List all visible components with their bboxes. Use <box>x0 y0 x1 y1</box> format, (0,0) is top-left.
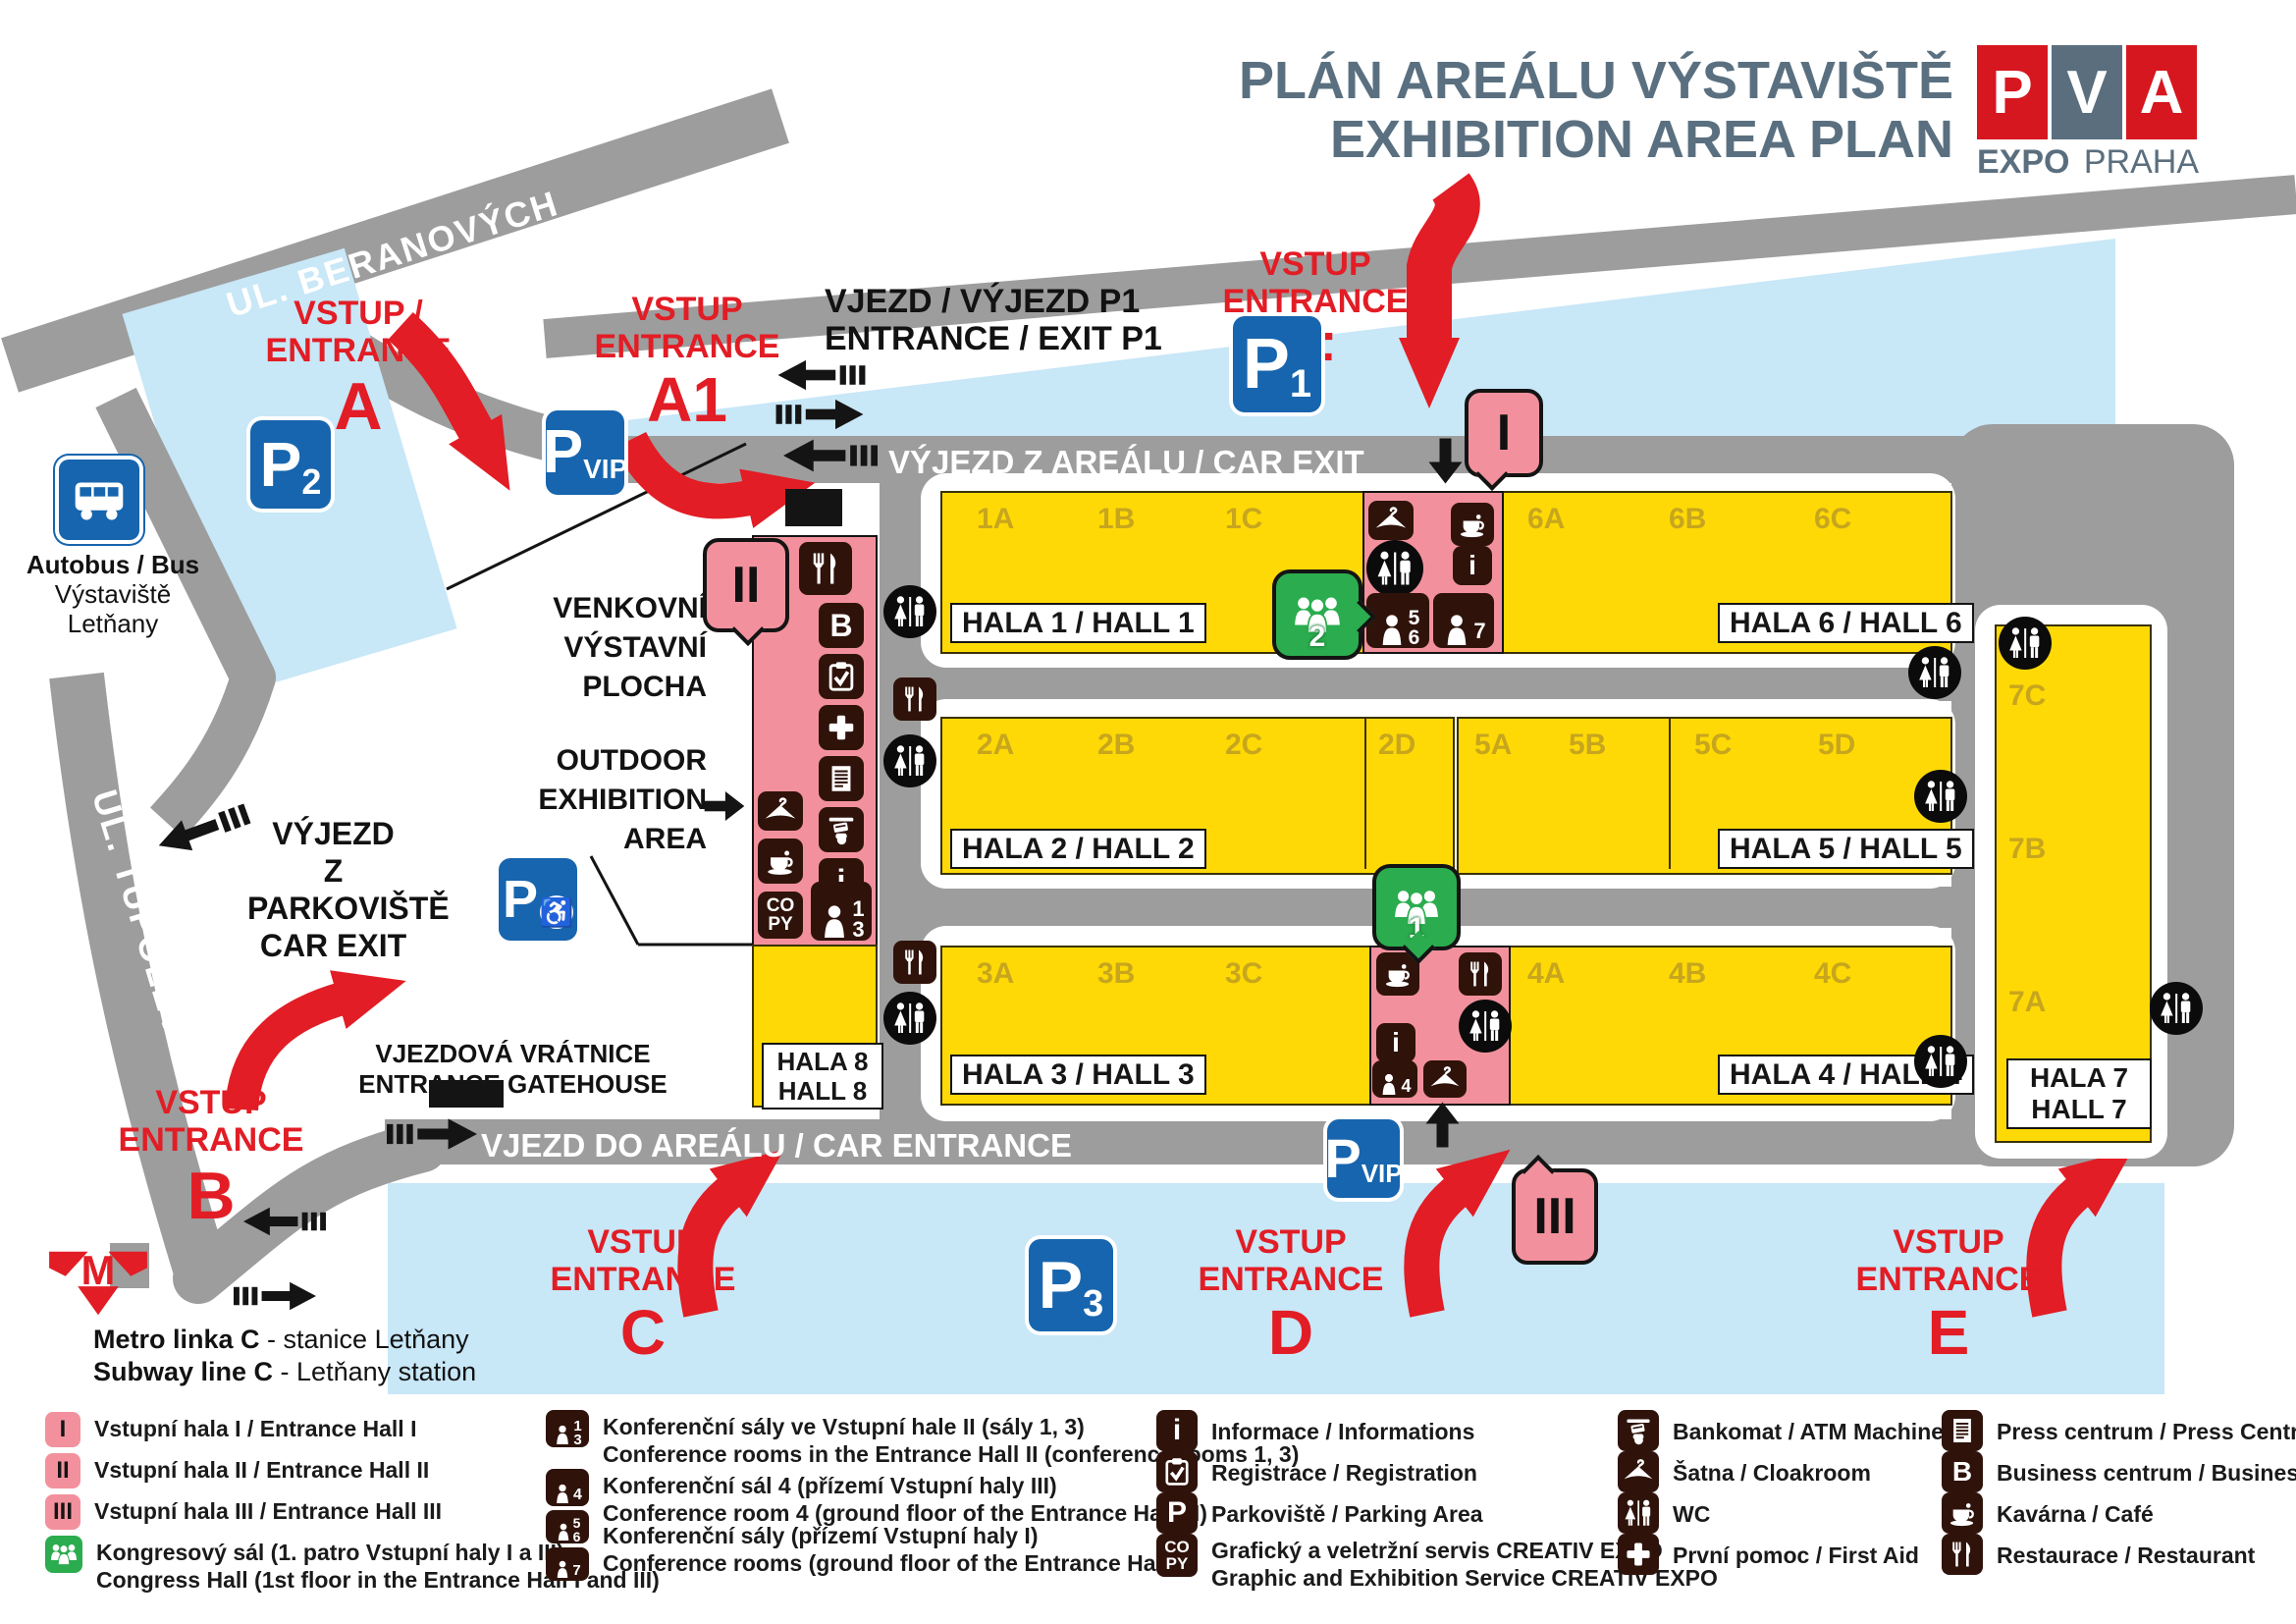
conference-rooms-1-3-icon: 13 <box>811 882 872 941</box>
page-title: PLÁN AREÁLU VÝSTAVIŠTĚ EXHIBITION AREA P… <box>1222 51 1953 169</box>
zone-7b: 7B <box>2008 833 2046 866</box>
wc-icon <box>883 734 936 787</box>
legend-press-centre: Press centrum / Press Centre <box>1942 1410 2296 1451</box>
hall-8-label-line1: HALA 8 <box>772 1047 874 1076</box>
parking-exit-label: VÝJEZD Z PARKOVIŠTĚ CAR EXIT <box>247 815 419 964</box>
entrance-e-line2: ENTRANCE <box>1811 1261 2086 1298</box>
zone-7a: 7A <box>2008 986 2046 1019</box>
wc-icon <box>1999 617 2052 670</box>
metro-line2-rest: - Letňany station <box>273 1357 476 1386</box>
entrance-b-line1: VSTUP <box>74 1084 348 1121</box>
entrance-b-letter: B <box>74 1159 348 1233</box>
pvip-bottom-letter: P <box>1324 1131 1361 1186</box>
registration-icon <box>819 654 864 699</box>
pva-expo-logo: P V A EXPO PRAHA <box>1977 45 2199 182</box>
hall-6-label: HALA 6 / HALL 6 <box>1718 603 1974 643</box>
legend-entrance-hall-iii: III Vstupní hala III / Entrance Hall III <box>45 1494 442 1530</box>
pvip-bottom-sub: VIP <box>1362 1159 1403 1189</box>
wc-icon <box>1459 1000 1512 1053</box>
conference-room-7-legend-icon: 7 <box>546 1547 589 1581</box>
zone-3c: 3C <box>1225 957 1262 991</box>
wc-icon <box>1914 770 1967 823</box>
pvip-top-letter: P <box>543 422 583 483</box>
legend-cloakroom: Šatna / Cloakroom <box>1618 1451 1871 1492</box>
p1-letter: P <box>1243 329 1290 400</box>
legend-first-aid: První pomoc / First Aid <box>1618 1534 1919 1575</box>
parking-sign-disabled: P ♿ <box>499 858 577 941</box>
p3-letter: P <box>1039 1252 1083 1319</box>
entrance-hall-iii-marker: III <box>1512 1168 1598 1265</box>
entrance-a1-line2: ENTRANCE <box>550 328 825 365</box>
entrance-hall-i-marker: I <box>1465 389 1543 477</box>
zone-4c: 4C <box>1814 957 1851 991</box>
entrance-c-line2: ENTRANCE <box>506 1261 780 1298</box>
gate-arrow-car-entrance-icon <box>387 1117 477 1156</box>
cafe-legend-icon <box>1942 1492 1983 1534</box>
legend-cafe: Kavárna / Café <box>1942 1492 2154 1534</box>
pdisabled-letter: P <box>503 873 538 926</box>
congress-hall-legend-icon <box>45 1536 82 1573</box>
legend-entrance-hall-i: I Vstupní hala I / Entrance Hall I <box>45 1412 416 1447</box>
arrow-into-hall-i-icon <box>1424 439 1463 484</box>
entrance-b-line2: ENTRANCE <box>74 1121 348 1159</box>
conference-room-4-icon: 4 <box>1372 1060 1417 1098</box>
bus-stop-label: Autobus / Bus Výstaviště Letňany <box>15 550 211 638</box>
gate-arrow-b-enter-icon <box>234 1280 316 1317</box>
page-title-line2: EXHIBITION AREA PLAN <box>1222 110 1953 169</box>
hall-1-label: HALA 1 / HALL 1 <box>950 603 1206 643</box>
entrance-hall-ii-legend-icon: II <box>45 1453 80 1489</box>
hall-2-divider <box>1364 719 1366 869</box>
outdoor-area-label-cz: VENKOVNÍ VÝSTAVNÍ PLOCHA <box>461 589 707 707</box>
congress-hall-2-marker: 2 <box>1272 569 1362 660</box>
zone-1b: 1B <box>1097 503 1135 536</box>
hall-7-label-line2: HALL 7 <box>2016 1094 2142 1125</box>
bus-label-line1: Autobus / Bus <box>15 550 211 579</box>
wc-icon <box>1914 1035 1967 1088</box>
legend-parking: P Parkoviště / Parking Area <box>1156 1492 1483 1534</box>
legend-entrance-hall-ii: II Vstupní hala II / Entrance Hall II <box>45 1453 429 1489</box>
parking-sign-pvip-top: P VIP <box>546 410 624 495</box>
entrance-hall-ii-marker: II <box>703 538 789 632</box>
outdoor-en1: OUTDOOR <box>461 741 707 781</box>
zone-6a: 6A <box>1527 503 1565 536</box>
entrance-d-letter: D <box>1153 1298 1428 1369</box>
zone-4b: 4B <box>1669 957 1706 991</box>
entrance-c-label: VSTUP ENTRANCE C <box>506 1223 780 1369</box>
restaurant-icon <box>893 677 936 721</box>
entrance-d-line2: ENTRANCE <box>1153 1261 1428 1298</box>
entrance-e-label: VSTUP ENTRANCE E <box>1811 1223 2086 1369</box>
parking-legend-icon: P <box>1156 1492 1198 1534</box>
wheelchair-icon: ♿ <box>540 895 573 929</box>
outdoor-cz1: VENKOVNÍ <box>461 589 707 628</box>
hall-2-label: HALA 2 / HALL 2 <box>950 829 1206 869</box>
atm-icon <box>819 807 864 852</box>
outdoor-en2: EXHIBITION <box>461 781 707 820</box>
legend-information: i Informace / Informations <box>1156 1410 1474 1451</box>
bus-label-line2: Výstaviště Letňany <box>15 579 211 638</box>
press-centre-legend-icon <box>1942 1410 1983 1451</box>
logo-letter-a: A <box>2126 45 2197 139</box>
outdoor-cz2: VÝSTAVNÍ <box>461 628 707 668</box>
entrance-e-line1: VSTUP <box>1811 1223 2086 1261</box>
hall2-entrance-building <box>785 489 842 526</box>
pvip-top-sub: VIP <box>583 454 627 485</box>
exhibition-area-map: { "title": {"line1": "PLÁN AREÁLU VÝSTAV… <box>0 0 2296 1624</box>
conference-room-7-icon: 7 <box>1433 593 1494 648</box>
parking-exit-line1: VÝJEZD <box>247 815 419 852</box>
zone-1a: 1A <box>977 503 1014 536</box>
outdoor-area-label-en: OUTDOOR EXHIBITION AREA <box>461 741 707 859</box>
restaurant-legend-icon <box>1942 1534 1983 1575</box>
hall-8-label-line2: HALL 8 <box>772 1076 874 1106</box>
press-centre-icon <box>819 756 864 801</box>
entrance-c-line1: VSTUP <box>506 1223 780 1261</box>
entrance-hall-i-legend-icon: I <box>45 1412 80 1447</box>
logo-letter-v: V <box>2052 45 2122 139</box>
page-title-line1: PLÁN AREÁLU VÝSTAVIŠTĚ <box>1222 51 1953 110</box>
p2-letter: P <box>260 433 302 496</box>
legend-wc: WC <box>1618 1492 1710 1534</box>
gatehouse-line1: VJEZDOVÁ VRÁTNICE <box>344 1039 682 1069</box>
business-centre-legend-icon: B <box>1942 1451 1983 1492</box>
legend-atm: Bankomat / ATM Machine <box>1618 1410 1944 1451</box>
wc-icon <box>883 992 936 1045</box>
zone-3b: 3B <box>1097 957 1135 991</box>
hall-5-divider <box>1669 719 1671 869</box>
hall-3-label: HALA 3 / HALL 3 <box>950 1055 1206 1095</box>
parking-sign-p3: P 3 <box>1029 1239 1113 1331</box>
zone-2b: 2B <box>1097 729 1135 762</box>
zone-5d: 5D <box>1818 729 1855 762</box>
outdoor-area-outline <box>591 856 638 945</box>
road-between-rows-1 <box>940 666 1955 701</box>
entrance-d-line1: VSTUP <box>1153 1223 1428 1261</box>
information-legend-icon: i <box>1156 1410 1198 1451</box>
first-aid-icon <box>819 705 864 750</box>
entrance-d-label: VSTUP ENTRANCE D <box>1153 1223 1428 1369</box>
parking-sign-p1: P 1 <box>1233 316 1321 412</box>
zone-5a: 5A <box>1474 729 1512 762</box>
congress-hall-1-marker: 1 <box>1372 864 1461 950</box>
metro-label: Metro linka C - stanice Letňany Subway l… <box>93 1324 476 1388</box>
copy-creativ-icon: COPY <box>758 892 803 939</box>
wc-icon <box>2150 982 2203 1035</box>
restaurant-icon <box>799 542 852 595</box>
parking-sign-p2: P 2 <box>250 420 331 509</box>
parking-exit-line2: Z PARKOVIŠTĚ <box>247 852 419 927</box>
p2-sub: 2 <box>301 461 321 503</box>
cloakroom-icon <box>758 791 803 831</box>
cloakroom-icon <box>1423 1060 1467 1098</box>
zone-2a: 2A <box>977 729 1014 762</box>
restaurant-icon <box>893 941 936 984</box>
legend-business-centre: B Business centrum / Business Centre <box>1942 1451 2296 1492</box>
logo-praha: PRAHA <box>2084 143 2199 182</box>
entrance-e-letter: E <box>1811 1298 2086 1369</box>
restaurant-icon <box>1459 952 1502 996</box>
cloakroom-icon <box>1368 501 1414 540</box>
gatehouse-building <box>429 1080 504 1108</box>
registration-legend-icon <box>1156 1451 1198 1492</box>
arrow-into-hall-iii-icon <box>1426 1103 1465 1148</box>
entrance-f-line1: VSTUP <box>1178 245 1453 283</box>
cafe-icon <box>758 839 803 884</box>
zone-7c: 7C <box>2008 679 2046 713</box>
legend-conference-5-6-7: 56 7 Konferenční sály (přízemí Vstupní h… <box>546 1510 1189 1581</box>
outdoor-cz3: PLOCHA <box>461 668 707 707</box>
conference-rooms-5-6-legend-icon: 56 <box>546 1510 589 1543</box>
cloakroom-legend-icon <box>1618 1451 1659 1492</box>
legend-restaurant: Restaurace / Restaurant <box>1942 1534 2255 1575</box>
hall-7-label: HALA 7 HALL 7 <box>2006 1058 2152 1129</box>
parking-sign-pvip-bottom: P VIP <box>1327 1119 1400 1198</box>
conference-rooms-1-3-legend-icon: 13 <box>546 1410 589 1447</box>
zone-4a: 4A <box>1527 957 1565 991</box>
zone-5b: 5B <box>1569 729 1606 762</box>
entrance-a1-line1: VSTUP <box>550 291 825 328</box>
wc-icon <box>1366 540 1423 597</box>
information-icon: i <box>1376 1023 1415 1062</box>
wc-legend-icon <box>1618 1492 1659 1534</box>
entrance-f-line2: ENTRANCE <box>1178 283 1453 320</box>
p3-sub: 3 <box>1083 1283 1103 1326</box>
gatehouse-label: VJEZDOVÁ VRÁTNICE ENTRANCE GATEHOUSE <box>344 1039 682 1100</box>
outdoor-en3: AREA <box>461 820 707 859</box>
business-centre-icon: B <box>819 603 864 648</box>
metro-icon <box>47 1249 149 1323</box>
entrance-hall-iii-legend-icon: III <box>45 1494 80 1530</box>
legend-registration: Registrace / Registration <box>1156 1451 1477 1492</box>
logo-expo: EXPO <box>1977 143 2069 182</box>
zone-3a: 3A <box>977 957 1014 991</box>
zone-6b: 6B <box>1669 503 1706 536</box>
metro-line2-bold: Subway line C <box>93 1357 273 1386</box>
zone-2c: 2C <box>1225 729 1262 762</box>
cafe-icon <box>1451 503 1494 546</box>
entrance-a-caption: VSTUP / ENTRANCE <box>221 295 496 369</box>
copy-creativ-legend-icon: COPY <box>1156 1534 1198 1577</box>
arrow-into-hall-ii-bottom-icon <box>699 791 750 826</box>
gate-arrow-car-exit-icon <box>783 438 878 478</box>
information-icon: i <box>1453 546 1492 585</box>
entrance-b-label: VSTUP ENTRANCE B <box>74 1084 348 1233</box>
conference-rooms-5-6-icon: 56 <box>1366 593 1429 648</box>
zone-2d: 2D <box>1378 729 1415 762</box>
bus-stop-icon <box>59 460 139 540</box>
first-aid-legend-icon <box>1618 1534 1659 1575</box>
metro-line1-bold: Metro linka C <box>93 1325 260 1354</box>
zone-5c: 5C <box>1694 729 1732 762</box>
parking-exit-line3: CAR EXIT <box>247 927 419 964</box>
conference-room-4-legend-icon: 4 <box>546 1469 589 1506</box>
wc-icon <box>883 585 936 638</box>
hall-8-label: HALA 8 HALL 8 <box>762 1043 883 1110</box>
p1-sub: 1 <box>1290 362 1311 406</box>
hall-7-label-line1: HALA 7 <box>2016 1062 2142 1094</box>
zone-6c: 6C <box>1814 503 1851 536</box>
atm-legend-icon <box>1618 1410 1659 1451</box>
hall-5-label: HALA 5 / HALL 5 <box>1718 829 1974 869</box>
wc-icon <box>1908 646 1961 699</box>
entrance-c-letter: C <box>506 1298 780 1369</box>
metro-line1-rest: - stanice Letňany <box>260 1325 469 1354</box>
car-exit-label: VÝJEZD Z AREÁLU / CAR EXIT <box>888 444 1364 481</box>
logo-letter-p: P <box>1977 45 2048 139</box>
car-entrance-label: VJEZD DO AREÁLU / CAR ENTRANCE <box>481 1127 1072 1164</box>
zone-1c: 1C <box>1225 503 1262 536</box>
gatehouse-line2: ENTRANCE GATEHOUSE <box>344 1069 682 1100</box>
